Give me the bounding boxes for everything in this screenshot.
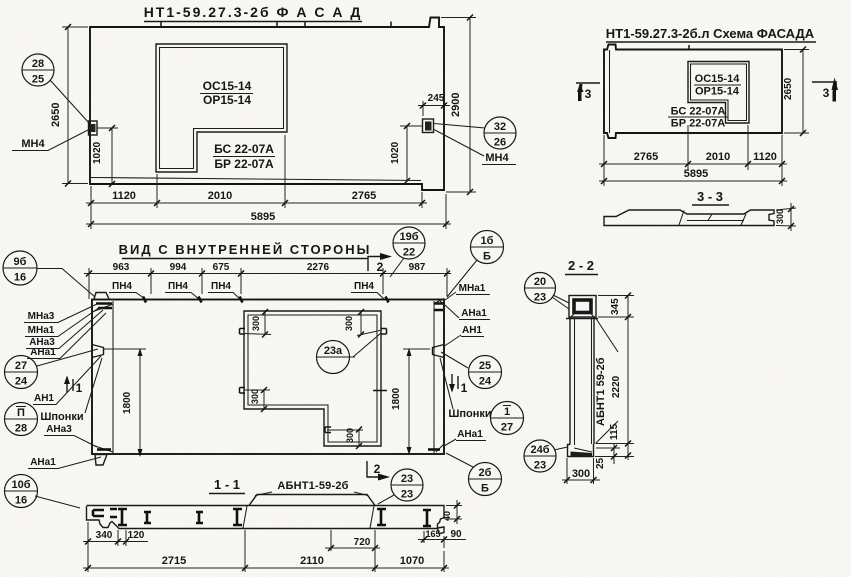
svg-text:Б: Б [481, 483, 489, 495]
svg-text:2 - 2: 2 - 2 [568, 258, 594, 273]
svg-text:2010: 2010 [208, 190, 232, 202]
svg-text:120: 120 [128, 530, 145, 541]
svg-text:БР 22-07А: БР 22-07А [214, 157, 274, 171]
svg-text:300: 300 [344, 316, 354, 331]
svg-text:БС 22-07А: БС 22-07А [671, 106, 726, 118]
svg-text:5895: 5895 [251, 211, 275, 223]
svg-text:АНа3: АНа3 [46, 424, 72, 435]
svg-text:1: 1 [504, 406, 510, 418]
svg-text:28: 28 [32, 58, 44, 70]
svg-text:БР 22-07А: БР 22-07А [671, 118, 725, 130]
svg-text:1: 1 [461, 381, 468, 395]
svg-text:2765: 2765 [634, 151, 658, 163]
svg-text:ОР15-14: ОР15-14 [203, 93, 251, 107]
svg-text:24б: 24б [530, 444, 549, 456]
svg-text:10б: 10б [11, 479, 30, 491]
svg-text:5895: 5895 [684, 168, 708, 180]
svg-text:ПН4: ПН4 [112, 281, 132, 292]
svg-text:ПН4: ПН4 [354, 281, 374, 292]
svg-text:ОС15-14: ОС15-14 [203, 79, 252, 93]
svg-text:Шпонки: Шпонки [40, 411, 83, 423]
svg-text:27: 27 [501, 422, 513, 434]
svg-text:25: 25 [479, 360, 491, 372]
svg-text:345: 345 [610, 298, 621, 315]
svg-text:24: 24 [15, 376, 28, 388]
svg-text:ВИД С ВНУТРЕННЕЙ СТОРОНЫ: ВИД С ВНУТРЕННЕЙ СТОРОНЫ [119, 242, 372, 257]
svg-text:1120: 1120 [112, 190, 136, 202]
svg-text:19б: 19б [399, 231, 418, 243]
svg-text:1: 1 [76, 381, 83, 395]
svg-text:1070: 1070 [400, 555, 424, 567]
svg-text:АНа1: АНа1 [30, 347, 56, 358]
svg-text:АБНТ1-59-2б: АБНТ1-59-2б [277, 480, 348, 492]
svg-text:ОР15-14: ОР15-14 [695, 86, 740, 98]
svg-text:АНа1: АНа1 [461, 308, 487, 319]
svg-text:3 - 3: 3 - 3 [697, 189, 723, 204]
svg-text:40: 40 [442, 511, 452, 521]
svg-text:ПН4: ПН4 [168, 281, 188, 292]
svg-text:9б: 9б [14, 256, 27, 268]
svg-text:ОС15-14: ОС15-14 [695, 73, 741, 85]
svg-text:23: 23 [401, 473, 413, 485]
svg-text:Шпонки: Шпонки [448, 408, 491, 420]
svg-text:АНа1: АНа1 [457, 429, 483, 440]
svg-text:Б: Б [483, 251, 491, 263]
svg-text:1020: 1020 [390, 141, 401, 164]
svg-text:245: 245 [428, 93, 445, 104]
svg-text:3: 3 [823, 86, 830, 100]
svg-text:АБНТ1 59-2б: АБНТ1 59-2б [595, 357, 607, 426]
svg-text:27: 27 [15, 360, 27, 372]
svg-text:300: 300 [345, 428, 355, 443]
svg-text:300: 300 [251, 316, 261, 331]
svg-text:25: 25 [595, 457, 606, 469]
svg-text:АН1: АН1 [34, 393, 54, 404]
svg-text:МН4: МН4 [485, 152, 509, 164]
svg-text:1800: 1800 [391, 387, 402, 410]
svg-text:2110: 2110 [300, 555, 324, 567]
svg-text:2765: 2765 [352, 190, 376, 202]
svg-text:2: 2 [377, 260, 384, 274]
svg-text:П: П [17, 407, 25, 419]
svg-text:БС 22-07А: БС 22-07А [214, 142, 274, 156]
svg-text:АН1: АН1 [462, 325, 482, 336]
svg-text:16: 16 [14, 272, 26, 284]
svg-text:1020: 1020 [92, 141, 103, 164]
svg-text:165: 165 [425, 529, 440, 539]
svg-text:НТ1-59.27.3-2б Ф А С А Д: НТ1-59.27.3-2б Ф А С А Д [144, 4, 363, 20]
svg-text:28: 28 [15, 423, 27, 435]
svg-text:1 - 1: 1 - 1 [214, 477, 240, 492]
svg-text:1800: 1800 [122, 391, 133, 414]
svg-text:ПН4: ПН4 [211, 281, 231, 292]
svg-text:994: 994 [170, 262, 187, 273]
svg-text:3: 3 [585, 87, 592, 101]
svg-text:340: 340 [96, 530, 113, 541]
svg-text:23: 23 [534, 292, 546, 304]
svg-text:25: 25 [32, 74, 44, 86]
svg-text:963: 963 [113, 262, 130, 273]
svg-text:23: 23 [534, 460, 546, 472]
svg-text:987: 987 [409, 262, 426, 273]
svg-text:23: 23 [401, 489, 413, 501]
svg-text:20: 20 [534, 276, 546, 288]
svg-text:2010: 2010 [706, 151, 730, 163]
svg-text:32: 32 [494, 121, 506, 133]
svg-text:675: 675 [213, 262, 230, 273]
svg-text:2б: 2б [479, 467, 492, 479]
svg-text:2276: 2276 [307, 262, 330, 273]
svg-text:2715: 2715 [162, 555, 186, 567]
svg-text:2900: 2900 [450, 93, 462, 117]
svg-text:300: 300 [775, 209, 785, 224]
svg-text:115: 115 [609, 423, 620, 440]
svg-text:2650: 2650 [50, 103, 62, 127]
svg-text:2650: 2650 [783, 77, 794, 100]
svg-text:МН4: МН4 [21, 138, 45, 150]
svg-text:2: 2 [374, 462, 381, 476]
svg-text:22: 22 [403, 247, 415, 259]
svg-text:НТ1-59.27.3-2б.л Схема ФАСАДА: НТ1-59.27.3-2б.л Схема ФАСАДА [606, 26, 815, 41]
svg-text:МНа1: МНа1 [28, 325, 55, 336]
svg-text:300: 300 [250, 389, 260, 404]
svg-text:1б: 1б [481, 235, 494, 247]
svg-text:2220: 2220 [611, 375, 622, 398]
svg-text:1120: 1120 [753, 151, 777, 163]
svg-text:АНа1: АНа1 [30, 457, 56, 468]
svg-text:300: 300 [572, 468, 590, 480]
svg-text:23а: 23а [324, 345, 343, 357]
svg-text:26: 26 [494, 137, 506, 149]
svg-text:МНа3: МНа3 [28, 311, 55, 322]
svg-text:24: 24 [479, 376, 492, 388]
svg-text:720: 720 [354, 537, 371, 548]
svg-text:16: 16 [15, 495, 27, 507]
svg-text:МНа1: МНа1 [459, 283, 486, 294]
svg-text:90: 90 [450, 529, 462, 540]
